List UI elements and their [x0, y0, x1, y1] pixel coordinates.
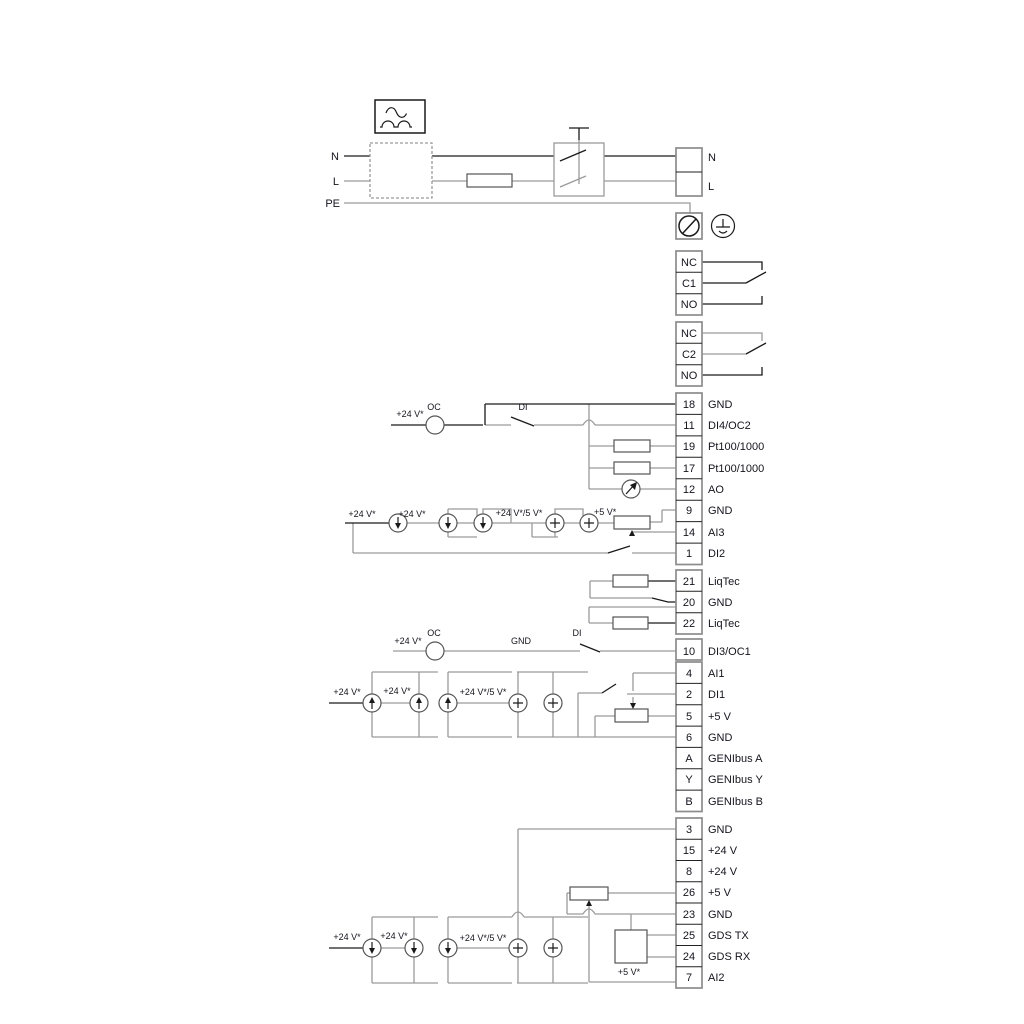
terminal-2-label: DI1 [708, 689, 725, 701]
terminal-21: 21 [683, 576, 695, 588]
terminal-2: 2 [686, 689, 692, 701]
terminal-10-label: DI3/OC1 [708, 646, 751, 658]
terminal-21-label: LiqTec [708, 576, 740, 588]
potentiometer-ai3 [614, 516, 650, 536]
v24v5-label-ai1: +24 V*/5 V* [460, 687, 507, 697]
di-label-di4: DI [519, 402, 528, 412]
terminal-5: 5 [686, 711, 692, 723]
resistor-liqtec-21 [613, 575, 648, 587]
oc-label-di4: OC [427, 402, 441, 412]
potentiometer-ai2 [570, 887, 608, 906]
terminal-24: 24 [683, 951, 695, 963]
terminal-a: A [685, 753, 693, 765]
terminal-b-label: GENIbus B [708, 796, 763, 808]
terminal-14: 14 [683, 527, 695, 539]
gds-module [615, 930, 647, 963]
source-up-icons [363, 694, 457, 712]
mains-n-label: N [331, 151, 339, 163]
terminal-4-label: AI1 [708, 668, 725, 680]
terminal-17: 17 [683, 463, 695, 475]
terminal-15: 15 [683, 845, 695, 857]
potentiometer-ai1 [615, 703, 648, 722]
terminal-20: 20 [683, 597, 695, 609]
mains-l-label: L [333, 176, 339, 188]
v24-label-ai1-1: +24 V* [333, 687, 361, 697]
relay1-block: NC C1 NO [676, 251, 702, 315]
terminal-7-label: AI2 [708, 972, 725, 984]
di-label-di3: DI [573, 628, 582, 638]
terminal-6: 6 [686, 732, 692, 744]
terminal-9-label: GND [708, 505, 733, 517]
mains-pe-label: PE [325, 198, 340, 210]
relay1-nc: NC [681, 257, 697, 269]
earth-terminal [676, 213, 702, 239]
terminal-a-label: GENIbus A [708, 753, 763, 765]
resistor-pt100-17 [614, 462, 650, 474]
mains-terminal-block [676, 148, 702, 196]
source-down-icons [363, 514, 492, 957]
terminal-y: Y [685, 774, 693, 786]
v5-label-ai3: +5 V* [594, 507, 617, 517]
relay1-no: NO [681, 299, 698, 311]
terminal-18: 18 [683, 399, 695, 411]
relay1-c1: C1 [682, 278, 696, 290]
terminal-10: 10 [683, 646, 695, 658]
terminal-19-label: Pt100/1000 [708, 441, 764, 453]
v24v5-label-ai2: +24 V*/5 V* [460, 933, 507, 943]
protective-earth-icon [712, 215, 735, 238]
fuse [467, 174, 512, 187]
terminal-12-label: AO [708, 484, 724, 496]
terminal-strip-3: 10 DI3/OC1 4 2 5 6 A Y B AI1 DI1 +5 V GN… [676, 639, 763, 812]
v24-label-di4: +24 V* [396, 409, 424, 419]
terminal-26-label: +5 V [708, 887, 732, 899]
terminal-strip-4: 3 15 8 26 23 25 24 7 GND +24 V +24 V +5 … [676, 818, 751, 988]
oc-circle-di3 [426, 642, 444, 660]
terminal-22-label: LiqTec [708, 618, 740, 630]
gnd-label-di3: GND [511, 636, 532, 646]
terminal-1: 1 [686, 548, 692, 560]
v24-label-ai2-1: +24 V* [333, 932, 361, 942]
terminal-8: 8 [686, 866, 692, 878]
terminal-strip-1: 18 11 19 17 12 9 14 1 GND DI4/OC2 Pt100/… [676, 393, 764, 565]
terminal-3: 3 [686, 824, 692, 836]
relay2-block: NC C2 NO [676, 322, 702, 386]
terminal-26: 26 [683, 887, 695, 899]
oc-label-di3: OC [427, 628, 441, 638]
terminal-14-label: AI3 [708, 527, 725, 539]
terminal-3-label: GND [708, 824, 733, 836]
terminal-12: 12 [683, 484, 695, 496]
wiring-diagram-page: NC C1 NO NC C2 NO 18 11 19 17 12 9 14 1 … [0, 0, 1024, 1024]
relay2-c2: C2 [682, 349, 696, 361]
terminal-23: 23 [683, 909, 695, 921]
relay2-nc: NC [681, 328, 697, 340]
terminal-8-label: +24 V [708, 866, 738, 878]
terminal-18-label: GND [708, 399, 733, 411]
terminal-6-label: GND [708, 732, 733, 744]
external-device-box [370, 143, 432, 198]
terminal-strip-liqtec: 21 20 22 LiqTec GND LiqTec [676, 570, 740, 634]
terminal-9: 9 [686, 505, 692, 517]
v5-label-gds: +5 V* [618, 967, 641, 977]
v24-label-ai3-1: +24 V* [348, 509, 376, 519]
terminal-4: 4 [686, 668, 692, 680]
terminal-25-label: GDS TX [708, 930, 749, 942]
rcd-box [375, 100, 425, 133]
v24-label-di3: +24 V* [394, 636, 422, 646]
terminal-11: 11 [683, 420, 694, 432]
terminal-y-label: GENIbus Y [708, 774, 763, 786]
resistor-liqtec-22 [613, 617, 648, 629]
relay2-no: NO [681, 370, 698, 382]
v24-label-ai3-2: +24 V* [398, 509, 426, 519]
terminal-l-label: L [708, 181, 714, 193]
terminal-n-label: N [708, 152, 716, 164]
terminal-17-label: Pt100/1000 [708, 463, 764, 475]
terminal-1-label: DI2 [708, 548, 725, 560]
terminal-b: B [685, 796, 692, 808]
resistor-pt100-19 [614, 440, 650, 452]
wiring-diagram: NC C1 NO NC C2 NO 18 11 19 17 12 9 14 1 … [0, 0, 1024, 1024]
ao-meter [622, 480, 640, 498]
terminal-23-label: GND [708, 909, 733, 921]
terminal-5-label: +5 V [708, 711, 732, 723]
terminal-24-label: GDS RX [708, 951, 751, 963]
terminal-20-label: GND [708, 597, 733, 609]
terminal-22: 22 [683, 618, 695, 630]
oc-circle-di4 [426, 416, 444, 434]
terminal-11-label: DI4/OC2 [708, 420, 751, 432]
terminal-25: 25 [683, 930, 695, 942]
terminal-15-label: +24 V [708, 845, 738, 857]
terminal-7: 7 [686, 972, 692, 984]
v24v5-label-ai3: +24 V*/5 V* [496, 508, 543, 518]
v24-label-ai2-2: +24 V* [380, 931, 408, 941]
v24-label-ai1-2: +24 V* [383, 686, 411, 696]
terminal-19: 19 [683, 441, 695, 453]
